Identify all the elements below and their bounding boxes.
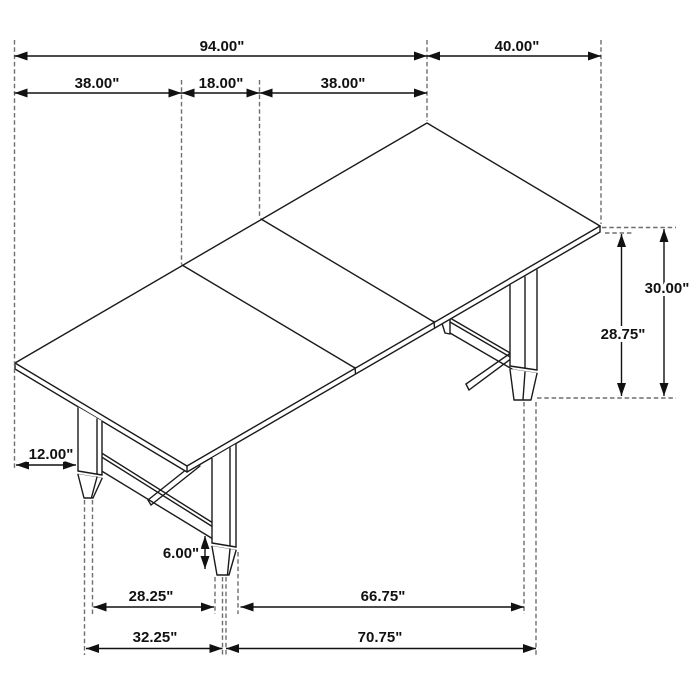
dimension-drawing-canvas: 94.00" 40.00" 38.00" 18.00" 38.00" 30.00… <box>0 0 700 700</box>
right-brace-end-cap <box>466 384 469 390</box>
dimension-foot-span-inner-right: 66.75" <box>241 588 525 607</box>
dimension-label-30: 30.00" <box>645 280 690 297</box>
dimension-label-2825: 28.25" <box>129 588 174 605</box>
dimension-label-12: 12.00" <box>29 446 74 463</box>
right-beam-face-edge <box>450 322 512 358</box>
dimension-label-38b: 38.00" <box>321 75 366 92</box>
dimension-foot-span-inner-left: 28.25" <box>94 588 215 607</box>
dimension-label-7075: 70.75" <box>358 629 403 646</box>
table-dimension-drawing: 94.00" 40.00" 38.00" 18.00" 38.00" 30.00… <box>0 0 700 700</box>
dimension-label-6675: 66.75" <box>361 588 406 605</box>
back-left-leg <box>78 407 102 498</box>
dimension-leaf: 18.00" <box>182 75 260 93</box>
right-beam-top-edge <box>450 318 512 354</box>
front-left-leg <box>212 444 236 575</box>
dimension-foot-height: 6.00" <box>163 536 205 569</box>
left-beam-bottom-edge <box>100 470 213 539</box>
front-right-leg-fill <box>510 270 537 371</box>
dimension-label-3225: 32.25" <box>133 629 178 646</box>
right-brace-bottom-edge <box>469 358 512 390</box>
right-end-beam <box>441 318 512 369</box>
dimension-section-right: 38.00" <box>260 75 428 93</box>
dimension-underside-height: 28.75" <box>601 234 646 396</box>
front-left-leg-fill <box>212 444 236 548</box>
dimension-label-40: 40.00" <box>495 38 540 55</box>
dimension-leg-inset: 12.00" <box>16 446 76 465</box>
right-diagonal-brace <box>466 352 512 390</box>
dimension-label-94: 94.00" <box>200 38 245 55</box>
dimension-label-6: 6.00" <box>163 545 199 562</box>
dimension-label-2875: 28.75" <box>601 326 646 343</box>
dimension-width: 40.00" <box>427 38 601 56</box>
dimension-table-height: 30.00" <box>645 229 690 396</box>
right-beam-bottom-edge <box>450 333 512 369</box>
dimension-section-left: 38.00" <box>15 75 182 93</box>
dimension-foot-span-outer-right: 70.75" <box>226 629 536 649</box>
dimension-label-38a: 38.00" <box>75 75 120 92</box>
dimension-foot-span-outer-left: 32.25" <box>86 629 223 649</box>
right-brace-top-edge <box>466 352 512 384</box>
dimension-overall-length: 94.00" <box>15 38 428 56</box>
dimension-label-18: 18.00" <box>199 75 244 92</box>
front-right-leg <box>510 270 537 400</box>
